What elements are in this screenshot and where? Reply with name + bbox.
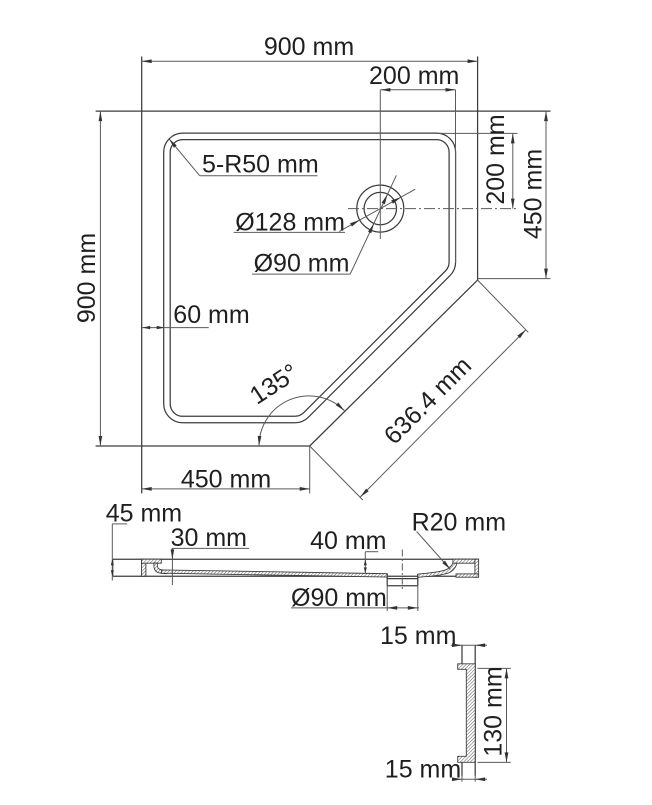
svg-text:135°: 135°	[245, 358, 304, 410]
svg-text:450 mm: 450 mm	[181, 465, 271, 493]
svg-text:15 mm: 15 mm	[380, 622, 456, 650]
svg-text:130 mm: 130 mm	[480, 666, 508, 756]
svg-text:40 mm: 40 mm	[310, 527, 386, 555]
svg-text:Ø128 mm: Ø128 mm	[235, 208, 345, 236]
svg-text:60 mm: 60 mm	[173, 301, 249, 329]
svg-text:5-R50 mm: 5-R50 mm	[202, 150, 319, 178]
svg-text:Ø90 mm: Ø90 mm	[254, 250, 350, 278]
svg-text:900 mm: 900 mm	[264, 33, 354, 61]
svg-text:900 mm: 900 mm	[73, 233, 101, 323]
svg-text:450 mm: 450 mm	[520, 149, 548, 239]
svg-text:636.4 mm: 636.4 mm	[379, 352, 477, 450]
svg-text:Ø90 mm: Ø90 mm	[291, 584, 387, 612]
svg-text:30 mm: 30 mm	[171, 524, 247, 552]
svg-text:15 mm: 15 mm	[385, 756, 461, 784]
svg-text:200 mm: 200 mm	[482, 114, 510, 204]
svg-text:200 mm: 200 mm	[369, 62, 459, 90]
svg-text:R20 mm: R20 mm	[412, 508, 506, 536]
